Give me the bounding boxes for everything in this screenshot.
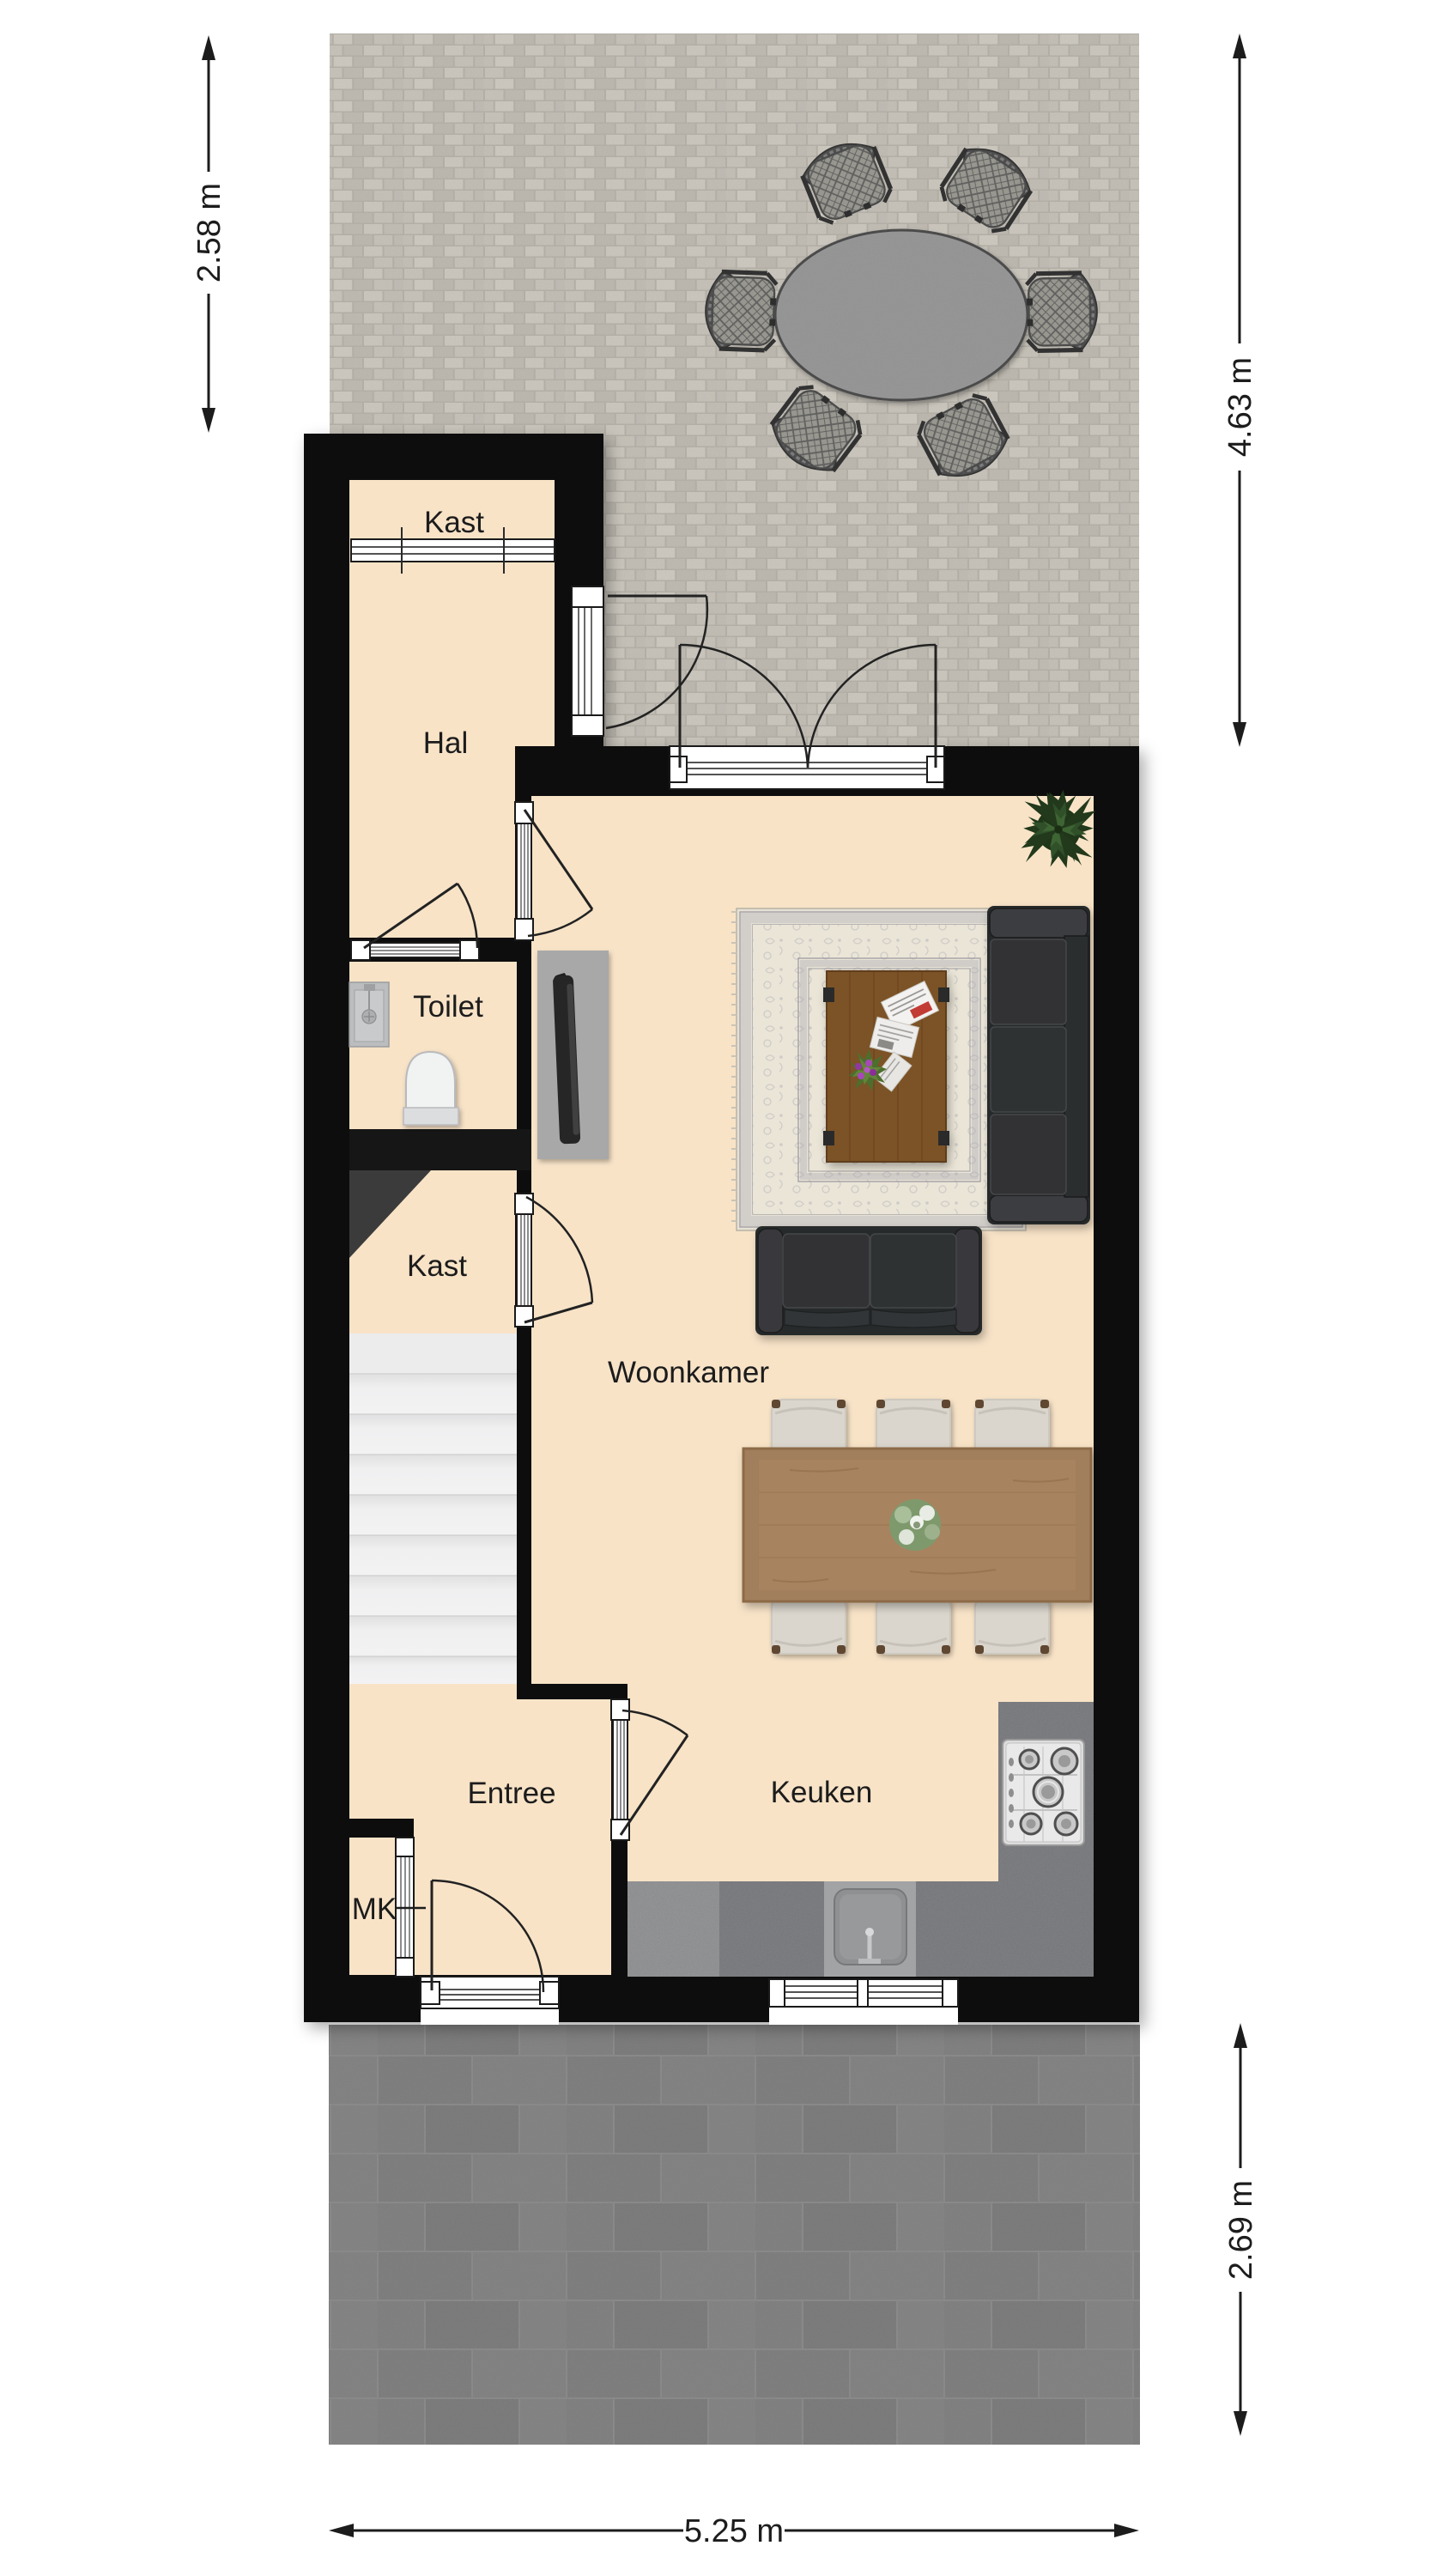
svg-text:4.63 m: 4.63 m <box>1222 357 1258 457</box>
svg-text:Kast: Kast <box>407 1249 467 1283</box>
svg-text:Entree: Entree <box>467 1777 555 1810</box>
svg-text:5.25 m: 5.25 m <box>684 2513 784 2549</box>
svg-text:Woonkamer: Woonkamer <box>608 1356 769 1389</box>
svg-text:Toilet: Toilet <box>413 990 483 1024</box>
svg-text:2.58 m: 2.58 m <box>191 183 227 283</box>
svg-text:MK: MK <box>352 1893 397 1926</box>
svg-text:2.69 m: 2.69 m <box>1223 2180 1259 2280</box>
svg-text:Hal: Hal <box>423 726 469 760</box>
svg-text:Keuken: Keuken <box>771 1776 873 1809</box>
svg-text:Kast: Kast <box>424 506 484 539</box>
